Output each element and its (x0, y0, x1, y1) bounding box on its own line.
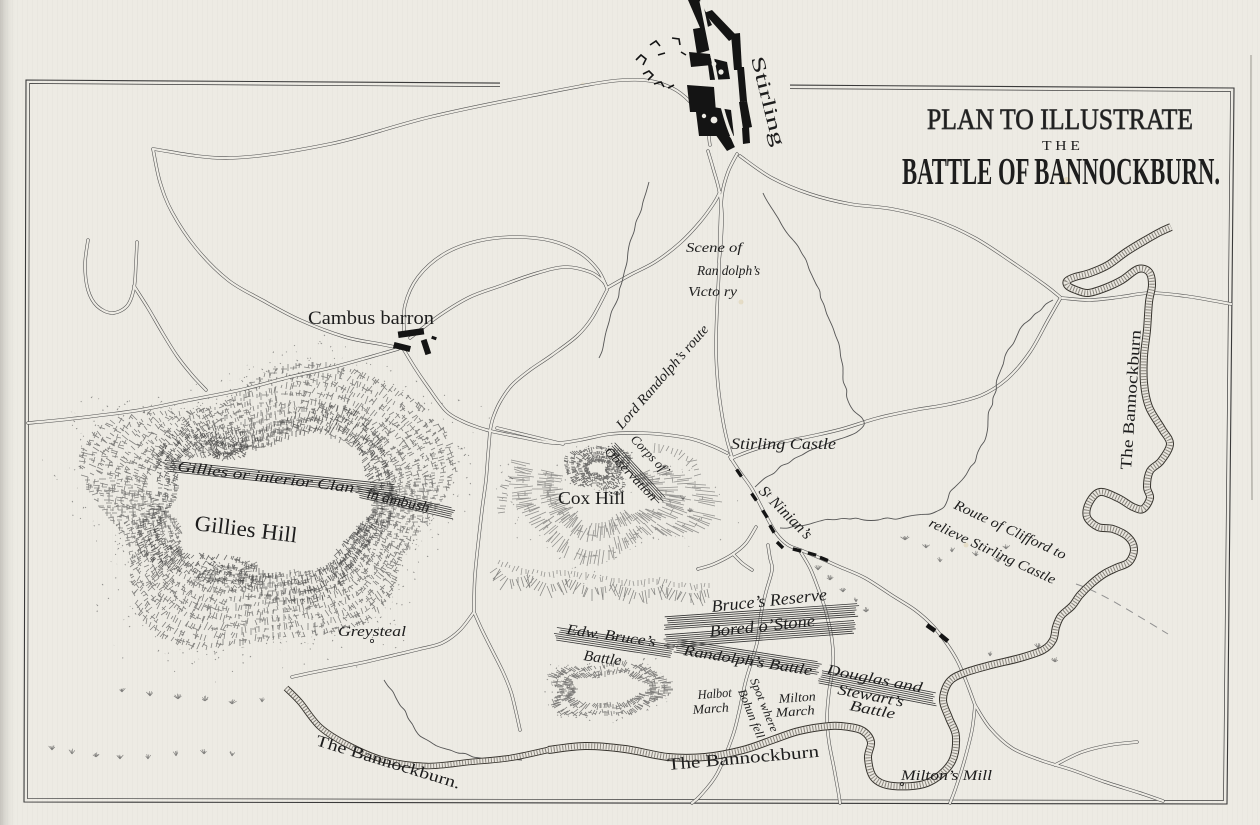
svg-text:Victo ry: Victo ry (688, 285, 738, 300)
svg-text:BATTLE OF BANNOCKBURN.: BATTLE OF BANNOCKBURN. (902, 151, 1220, 193)
svg-text:Ran dolph’s: Ran dolph’s (696, 264, 760, 279)
svg-text:Cambus barron: Cambus barron (308, 308, 435, 329)
svg-text:PLAN TO ILLUSTRATE: PLAN TO ILLUSTRATE (927, 103, 1193, 136)
svg-text:Cox Hill: Cox Hill (558, 488, 625, 508)
svg-text:Scene of: Scene of (686, 241, 745, 256)
svg-text:March: March (691, 700, 729, 718)
svg-text:Stirling Castle: Stirling Castle (731, 436, 836, 453)
svg-text:Greysteal: Greysteal (338, 624, 406, 640)
svg-text:March: March (774, 702, 815, 720)
svg-text:Milton’s Mill: Milton’s Mill (900, 768, 992, 784)
